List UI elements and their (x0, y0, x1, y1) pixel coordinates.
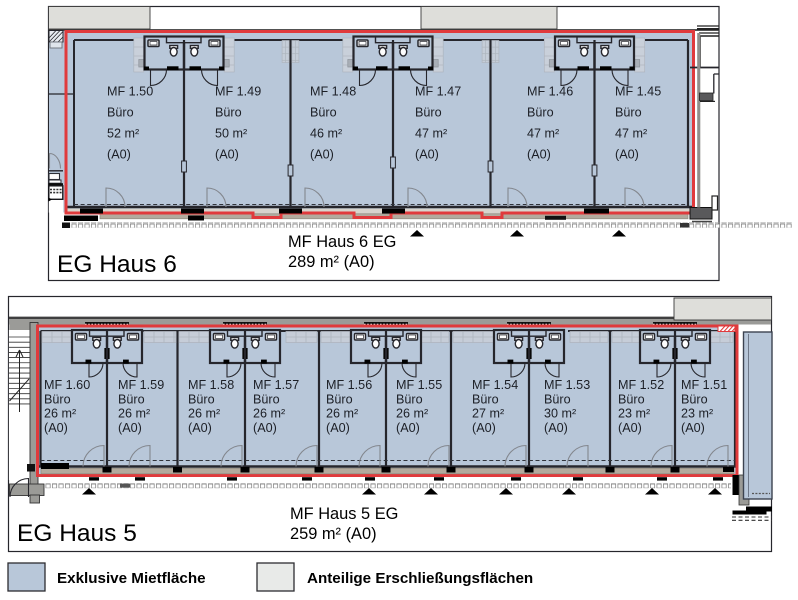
svg-text:(A0): (A0) (118, 421, 142, 435)
svg-text:MF 1.54: MF 1.54 (472, 378, 518, 392)
svg-text:Büro: Büro (615, 106, 642, 120)
svg-text:26 m²: 26 m² (396, 407, 428, 421)
svg-text:Exklusive Mietfläche: Exklusive Mietfläche (57, 570, 206, 587)
svg-text:47 m²: 47 m² (615, 127, 647, 141)
svg-text:(A0): (A0) (107, 148, 131, 162)
svg-text:26 m²: 26 m² (118, 407, 150, 421)
svg-text:MF 1.50: MF 1.50 (107, 85, 153, 99)
svg-text:(A0): (A0) (415, 148, 439, 162)
svg-text:289 m² (A0): 289 m² (A0) (288, 253, 375, 271)
svg-text:MF 1.52: MF 1.52 (618, 378, 664, 392)
svg-text:Büro: Büro (415, 106, 442, 120)
svg-text:EG Haus 6: EG Haus 6 (57, 251, 177, 278)
svg-text:Büro: Büro (188, 392, 215, 406)
svg-text:EG Haus 5: EG Haus 5 (17, 520, 137, 547)
svg-text:(A0): (A0) (253, 421, 277, 435)
svg-text:Büro: Büro (472, 392, 499, 406)
svg-text:MF 1.60: MF 1.60 (44, 378, 90, 392)
svg-text:26 m²: 26 m² (326, 407, 358, 421)
svg-text:MF 1.59: MF 1.59 (118, 378, 164, 392)
svg-text:(A0): (A0) (544, 421, 568, 435)
svg-text:(A0): (A0) (188, 421, 212, 435)
svg-text:(A0): (A0) (396, 421, 420, 435)
svg-text:Büro: Büro (396, 392, 423, 406)
svg-text:(A0): (A0) (527, 148, 551, 162)
svg-text:(A0): (A0) (215, 148, 239, 162)
svg-text:(A0): (A0) (310, 148, 334, 162)
svg-text:MF 1.55: MF 1.55 (396, 378, 442, 392)
svg-text:47 m²: 47 m² (527, 127, 559, 141)
svg-text:MF 1.46: MF 1.46 (527, 85, 573, 99)
svg-text:MF 1.53: MF 1.53 (544, 378, 590, 392)
svg-text:MF 1.58: MF 1.58 (188, 378, 234, 392)
svg-text:MF 1.49: MF 1.49 (215, 85, 261, 99)
svg-text:MF 1.56: MF 1.56 (326, 378, 372, 392)
svg-text:(A0): (A0) (472, 421, 496, 435)
svg-text:27 m²: 27 m² (472, 407, 504, 421)
svg-text:52 m²: 52 m² (107, 127, 139, 141)
svg-text:(A0): (A0) (681, 421, 705, 435)
svg-text:23 m²: 23 m² (681, 407, 713, 421)
svg-text:50 m²: 50 m² (215, 127, 247, 141)
svg-text:259 m² (A0): 259 m² (A0) (290, 525, 377, 543)
svg-text:Büro: Büro (118, 392, 145, 406)
svg-text:(A0): (A0) (44, 421, 68, 435)
svg-text:46 m²: 46 m² (310, 127, 342, 141)
svg-text:MF 1.57: MF 1.57 (253, 378, 299, 392)
svg-text:Anteilige Erschließungsflächen: Anteilige Erschließungsflächen (307, 570, 533, 587)
svg-text:(A0): (A0) (326, 421, 350, 435)
svg-text:26 m²: 26 m² (44, 407, 76, 421)
svg-text:MF 1.51: MF 1.51 (681, 378, 727, 392)
svg-text:(A0): (A0) (618, 421, 642, 435)
svg-text:Büro: Büro (544, 392, 571, 406)
svg-text:Büro: Büro (215, 106, 242, 120)
svg-text:Büro: Büro (326, 392, 353, 406)
svg-text:30 m²: 30 m² (544, 407, 576, 421)
svg-text:Büro: Büro (253, 392, 280, 406)
svg-text:MF Haus 5 EG: MF Haus 5 EG (290, 505, 398, 523)
svg-text:Büro: Büro (107, 106, 134, 120)
svg-text:47 m²: 47 m² (415, 127, 447, 141)
svg-text:Büro: Büro (44, 392, 71, 406)
svg-text:Büro: Büro (527, 106, 554, 120)
svg-text:26 m²: 26 m² (188, 407, 220, 421)
svg-text:MF 1.48: MF 1.48 (310, 85, 356, 99)
svg-text:MF Haus 6 EG: MF Haus 6 EG (288, 233, 396, 251)
svg-text:Büro: Büro (681, 392, 708, 406)
svg-text:MF 1.45: MF 1.45 (615, 85, 661, 99)
svg-text:23 m²: 23 m² (618, 407, 650, 421)
svg-text:26 m²: 26 m² (253, 407, 285, 421)
svg-text:Büro: Büro (618, 392, 645, 406)
svg-text:MF 1.47: MF 1.47 (415, 85, 461, 99)
svg-text:(A0): (A0) (615, 148, 639, 162)
svg-text:Büro: Büro (310, 106, 337, 120)
